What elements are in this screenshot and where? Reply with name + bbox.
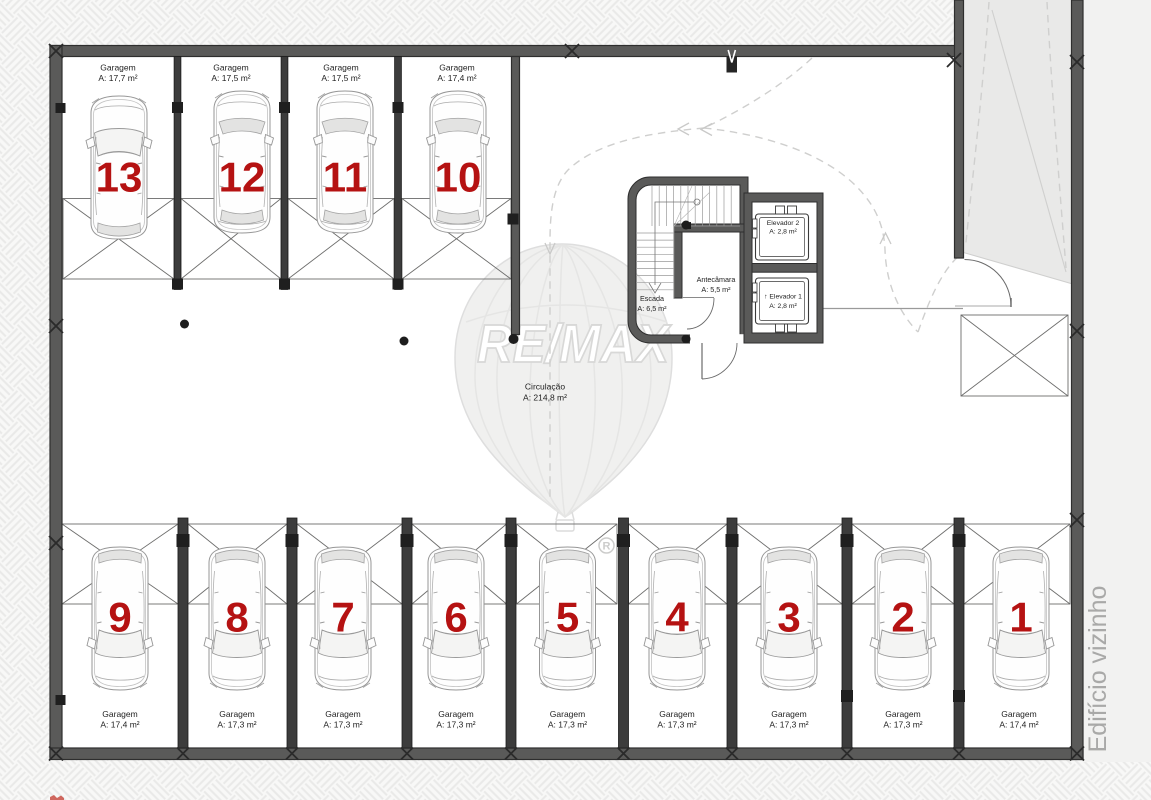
svg-text:A: 2,8 m²: A: 2,8 m²: [769, 303, 797, 310]
svg-text:A: 17,4 m²: A: 17,4 m²: [437, 73, 476, 83]
svg-text:Circulação: Circulação: [525, 382, 565, 392]
svg-text:R: R: [603, 541, 611, 553]
svg-text:Garagem: Garagem: [323, 63, 358, 73]
svg-text:1: 1: [1009, 594, 1032, 641]
svg-text:Garagem: Garagem: [771, 709, 806, 719]
svg-text:A: 5,5 m²: A: 5,5 m²: [701, 285, 731, 294]
svg-text:A: 17,5 m²: A: 17,5 m²: [211, 73, 250, 83]
svg-text:Garagem: Garagem: [550, 709, 585, 719]
svg-text:Escada: Escada: [640, 294, 664, 303]
svg-text:RE/MAX: RE/MAX: [477, 314, 672, 374]
svg-text:3: 3: [777, 594, 800, 641]
svg-text:2: 2: [891, 594, 914, 641]
svg-text:A: 2,8 m²: A: 2,8 m²: [769, 229, 797, 236]
svg-text:13: 13: [96, 154, 143, 201]
svg-text:8: 8: [225, 594, 248, 641]
svg-text:Garagem: Garagem: [1001, 709, 1036, 719]
svg-text:A: 17,4 m²: A: 17,4 m²: [999, 720, 1038, 730]
svg-text:5: 5: [556, 594, 579, 641]
svg-text:Garagem: Garagem: [659, 709, 694, 719]
svg-text:A: 17,3 m²: A: 17,3 m²: [657, 720, 696, 730]
svg-text:A: 17,3 m²: A: 17,3 m²: [769, 720, 808, 730]
svg-text:A: 17,3 m²: A: 17,3 m²: [883, 720, 922, 730]
svg-text:4: 4: [665, 594, 689, 641]
svg-text:↑ Elevador 1: ↑ Elevador 1: [764, 294, 802, 301]
svg-text:Edifício vizinho: Edifício vizinho: [1084, 586, 1112, 753]
svg-text:11: 11: [323, 154, 367, 201]
svg-text:A: 17,7 m²: A: 17,7 m²: [98, 73, 137, 83]
svg-text:7: 7: [331, 594, 354, 641]
svg-text:A: 6,5 m²: A: 6,5 m²: [637, 304, 667, 313]
svg-text:A: 17,3 m²: A: 17,3 m²: [436, 720, 475, 730]
svg-text:Garagem: Garagem: [102, 709, 137, 719]
svg-text:Garagem: Garagem: [213, 63, 248, 73]
svg-text:Garagem: Garagem: [100, 63, 135, 73]
svg-text:A: 17,5 m²: A: 17,5 m²: [321, 73, 360, 83]
svg-text:6: 6: [444, 594, 467, 641]
svg-text:12: 12: [219, 154, 266, 201]
svg-text:A: 17,3 m²: A: 17,3 m²: [548, 720, 587, 730]
svg-text:Garagem: Garagem: [219, 709, 254, 719]
svg-text:10: 10: [435, 154, 482, 201]
svg-text:A: 17,3 m²: A: 17,3 m²: [323, 720, 362, 730]
svg-text:A: 17,4 m²: A: 17,4 m²: [100, 720, 139, 730]
svg-text:Antecâmara: Antecâmara: [697, 275, 736, 284]
svg-text:Elevador 2: Elevador 2: [767, 220, 800, 227]
svg-text:A: 17,3 m²: A: 17,3 m²: [217, 720, 256, 730]
svg-text:Garagem: Garagem: [885, 709, 920, 719]
svg-text:Garagem: Garagem: [438, 709, 473, 719]
svg-text:Garagem: Garagem: [439, 63, 474, 73]
svg-text:Garagem: Garagem: [325, 709, 360, 719]
svg-text:9: 9: [108, 594, 131, 641]
svg-text:A: 214,8 m²: A: 214,8 m²: [523, 393, 567, 403]
